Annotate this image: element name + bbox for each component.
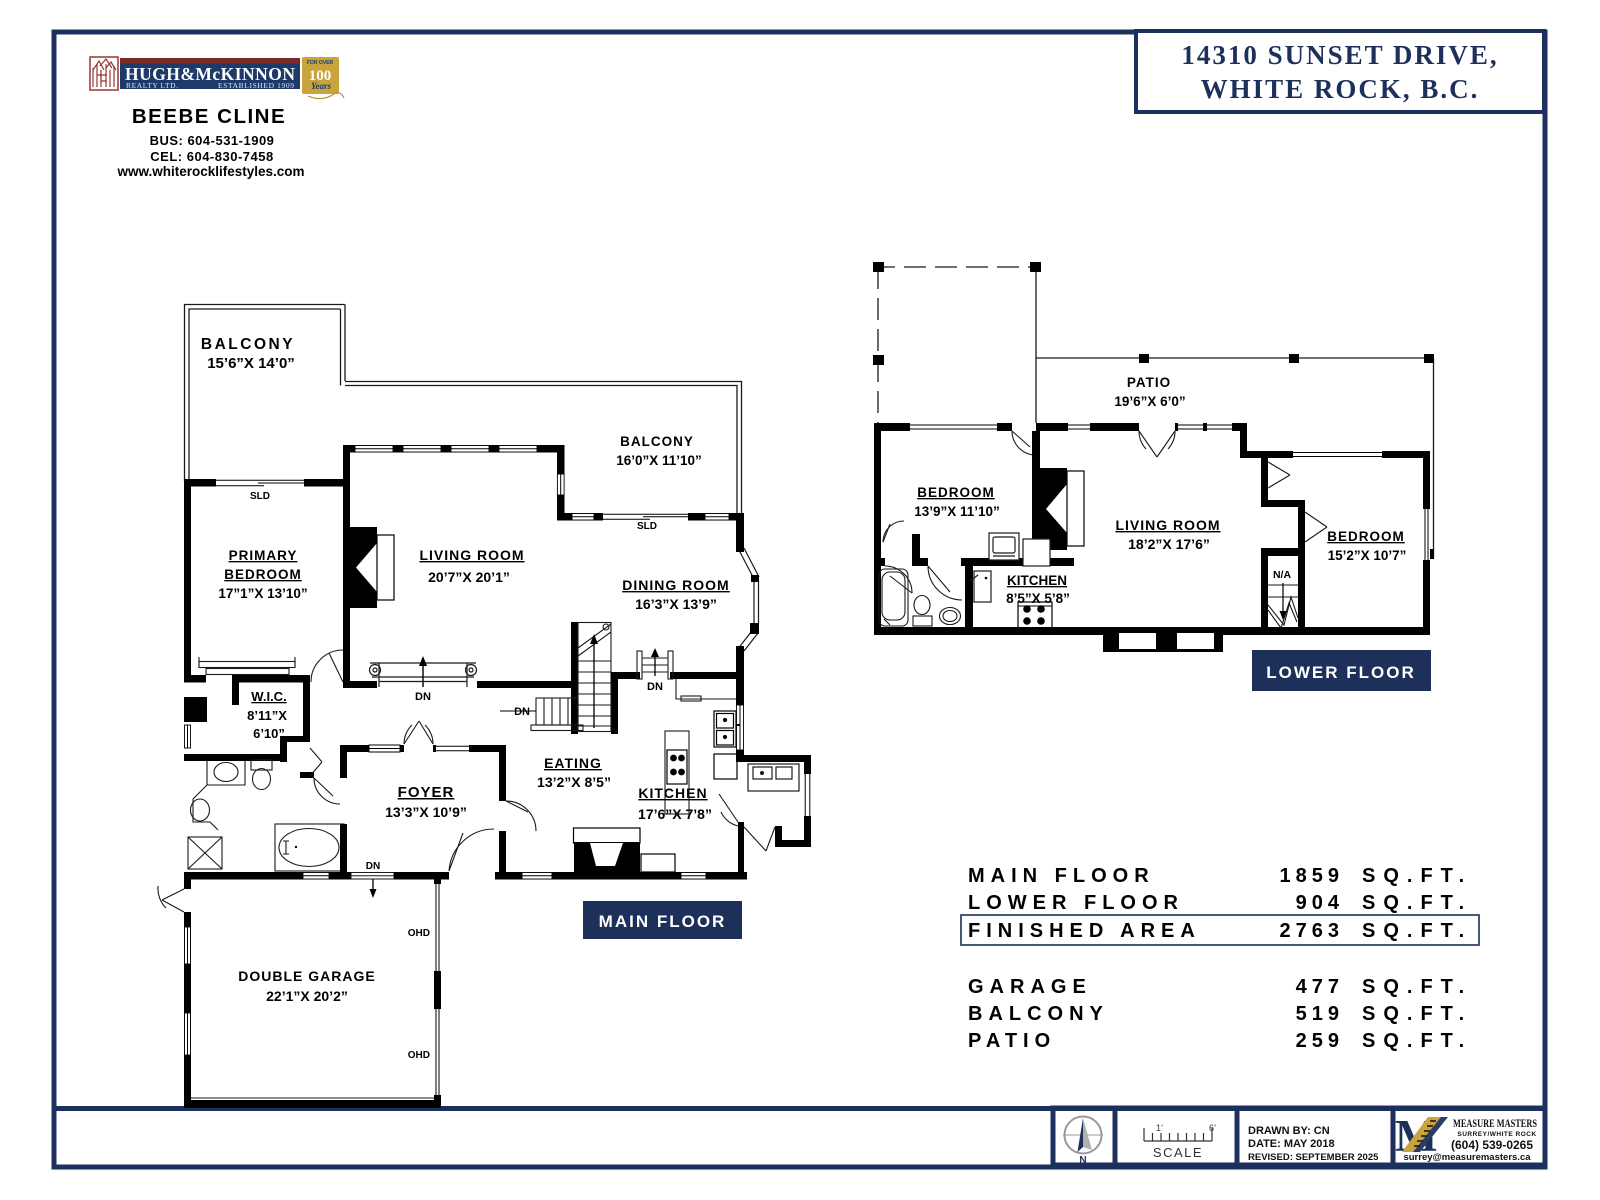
svg-text:BALCONY: BALCONY xyxy=(620,434,694,449)
svg-text:SLD: SLD xyxy=(637,521,657,532)
svg-text:FOYER: FOYER xyxy=(398,784,455,801)
svg-text:15’2”X 10’7”: 15’2”X 10’7” xyxy=(1328,548,1407,563)
svg-text:DOUBLE GARAGE: DOUBLE GARAGE xyxy=(238,968,375,984)
svg-text:OHD: OHD xyxy=(408,928,430,939)
svg-text:LIVING ROOM: LIVING ROOM xyxy=(1115,517,1220,533)
svg-text:(604) 539-0265: (604) 539-0265 xyxy=(1451,1138,1533,1152)
svg-text:6’10”: 6’10” xyxy=(253,726,285,741)
svg-text:13’2”X 8’5”: 13’2”X 8’5” xyxy=(537,774,611,790)
svg-text:DN: DN xyxy=(415,691,431,703)
svg-text:www.whiterocklifestyles.com: www.whiterocklifestyles.com xyxy=(116,164,304,179)
svg-text:EATING: EATING xyxy=(544,755,602,771)
svg-text:477: 477 xyxy=(1296,976,1344,998)
svg-text:22’1”X 20’2”: 22’1”X 20’2” xyxy=(266,988,348,1004)
svg-text:DINING ROOM: DINING ROOM xyxy=(622,577,729,593)
svg-text:SCALE: SCALE xyxy=(1153,1145,1203,1160)
svg-text:13’3”X 10’9”: 13’3”X 10’9” xyxy=(385,804,467,820)
svg-text:LOWER FLOOR: LOWER FLOOR xyxy=(1266,663,1415,682)
svg-text:GARAGE: GARAGE xyxy=(968,976,1092,998)
svg-text:MAIN FLOOR: MAIN FLOOR xyxy=(599,912,727,931)
svg-text:W.I.C.: W.I.C. xyxy=(251,689,286,704)
svg-text:N/A: N/A xyxy=(1273,569,1292,581)
svg-text:KITCHEN: KITCHEN xyxy=(1007,573,1067,588)
svg-text:OHD: OHD xyxy=(408,1050,430,1061)
svg-text:REALTY LTD.: REALTY LTD. xyxy=(126,81,178,90)
svg-text:REVISED: SEPTEMBER 2025: REVISED: SEPTEMBER 2025 xyxy=(1248,1152,1379,1163)
svg-text:DN: DN xyxy=(366,861,380,872)
svg-text:SURREY/WHITE ROCK: SURREY/WHITE ROCK xyxy=(1457,1131,1536,1138)
svg-text:MEASURE MASTERS: MEASURE MASTERS xyxy=(1453,1118,1537,1130)
svg-text:DATE: MAY 2018: DATE: MAY 2018 xyxy=(1248,1138,1335,1150)
svg-text:16’3”X 13’9”: 16’3”X 13’9” xyxy=(635,596,717,612)
svg-text:18’2”X 17’6”: 18’2”X 17’6” xyxy=(1128,536,1210,552)
svg-text:BEDROOM: BEDROOM xyxy=(1327,529,1405,544)
svg-text:KITCHEN: KITCHEN xyxy=(638,785,707,801)
svg-text:BEDROOM: BEDROOM xyxy=(224,567,302,582)
svg-text:1’: 1’ xyxy=(1156,1123,1163,1133)
svg-text:16’0”X 11’10”: 16’0”X 11’10” xyxy=(616,453,702,468)
svg-text:FOR OVER: FOR OVER xyxy=(307,60,334,66)
svg-text:BALCONY: BALCONY xyxy=(968,1003,1109,1025)
svg-text:SLD: SLD xyxy=(250,491,270,502)
svg-text:14310 SUNSET DRIVE,: 14310 SUNSET DRIVE, xyxy=(1181,40,1498,70)
svg-text:SQ.FT.: SQ.FT. xyxy=(1362,1030,1472,1052)
svg-text:15’6”X 14’0”: 15’6”X 14’0” xyxy=(207,355,295,372)
svg-text:19’6”X 6’0”: 19’6”X 6’0” xyxy=(1114,394,1185,409)
svg-text:DN: DN xyxy=(647,681,663,693)
svg-text:1859: 1859 xyxy=(1280,865,1345,887)
svg-text:surrey@measuremasters.ca: surrey@measuremasters.ca xyxy=(1403,1152,1531,1163)
svg-text:259: 259 xyxy=(1296,1030,1344,1052)
svg-text:WHITE ROCK, B.C.: WHITE ROCK, B.C. xyxy=(1201,74,1480,104)
svg-text:DN: DN xyxy=(514,706,530,718)
svg-text:904: 904 xyxy=(1296,892,1344,914)
svg-text:LOWER FLOOR: LOWER FLOOR xyxy=(968,892,1184,914)
svg-text:LIVING ROOM: LIVING ROOM xyxy=(419,547,524,563)
svg-text:SQ.FT.: SQ.FT. xyxy=(1362,1003,1472,1025)
svg-text:PRIMARY: PRIMARY xyxy=(229,548,298,563)
svg-text:SQ.FT.: SQ.FT. xyxy=(1362,920,1472,942)
svg-text:PATIO: PATIO xyxy=(968,1030,1056,1052)
svg-text:PATIO: PATIO xyxy=(1127,375,1171,390)
svg-text:N: N xyxy=(1079,1155,1086,1166)
svg-text:FINISHED AREA: FINISHED AREA xyxy=(968,920,1201,942)
svg-text:Years: Years xyxy=(311,81,331,91)
svg-text:BUS: 604-531-1909: BUS: 604-531-1909 xyxy=(150,133,275,148)
svg-text:DRAWN BY: CN: DRAWN BY: CN xyxy=(1248,1125,1330,1137)
svg-text:2763: 2763 xyxy=(1280,920,1345,942)
svg-text:8’11”X: 8’11”X xyxy=(247,708,287,723)
svg-text:BALCONY: BALCONY xyxy=(201,336,295,353)
svg-text:17”1”X 13’10”: 17”1”X 13’10” xyxy=(218,586,307,601)
svg-text:6’: 6’ xyxy=(1209,1123,1216,1133)
svg-text:BEDROOM: BEDROOM xyxy=(917,485,995,500)
svg-text:519: 519 xyxy=(1296,1003,1344,1025)
svg-text:MAIN FLOOR: MAIN FLOOR xyxy=(968,865,1155,887)
svg-text:CEL: 604-830-7458: CEL: 604-830-7458 xyxy=(150,149,273,164)
svg-text:SQ.FT.: SQ.FT. xyxy=(1362,976,1472,998)
svg-text:SQ.FT.: SQ.FT. xyxy=(1362,892,1472,914)
svg-text:SQ.FT.: SQ.FT. xyxy=(1362,865,1472,887)
svg-text:8’5”X 5’8”: 8’5”X 5’8” xyxy=(1006,591,1070,606)
svg-text:20’7”X 20’1”: 20’7”X 20’1” xyxy=(428,569,510,585)
svg-text:ESTABLISHED 1909: ESTABLISHED 1909 xyxy=(218,81,294,90)
svg-text:BEEBE CLINE: BEEBE CLINE xyxy=(132,105,286,128)
svg-text:13’9”X 11’10”: 13’9”X 11’10” xyxy=(914,504,1000,519)
